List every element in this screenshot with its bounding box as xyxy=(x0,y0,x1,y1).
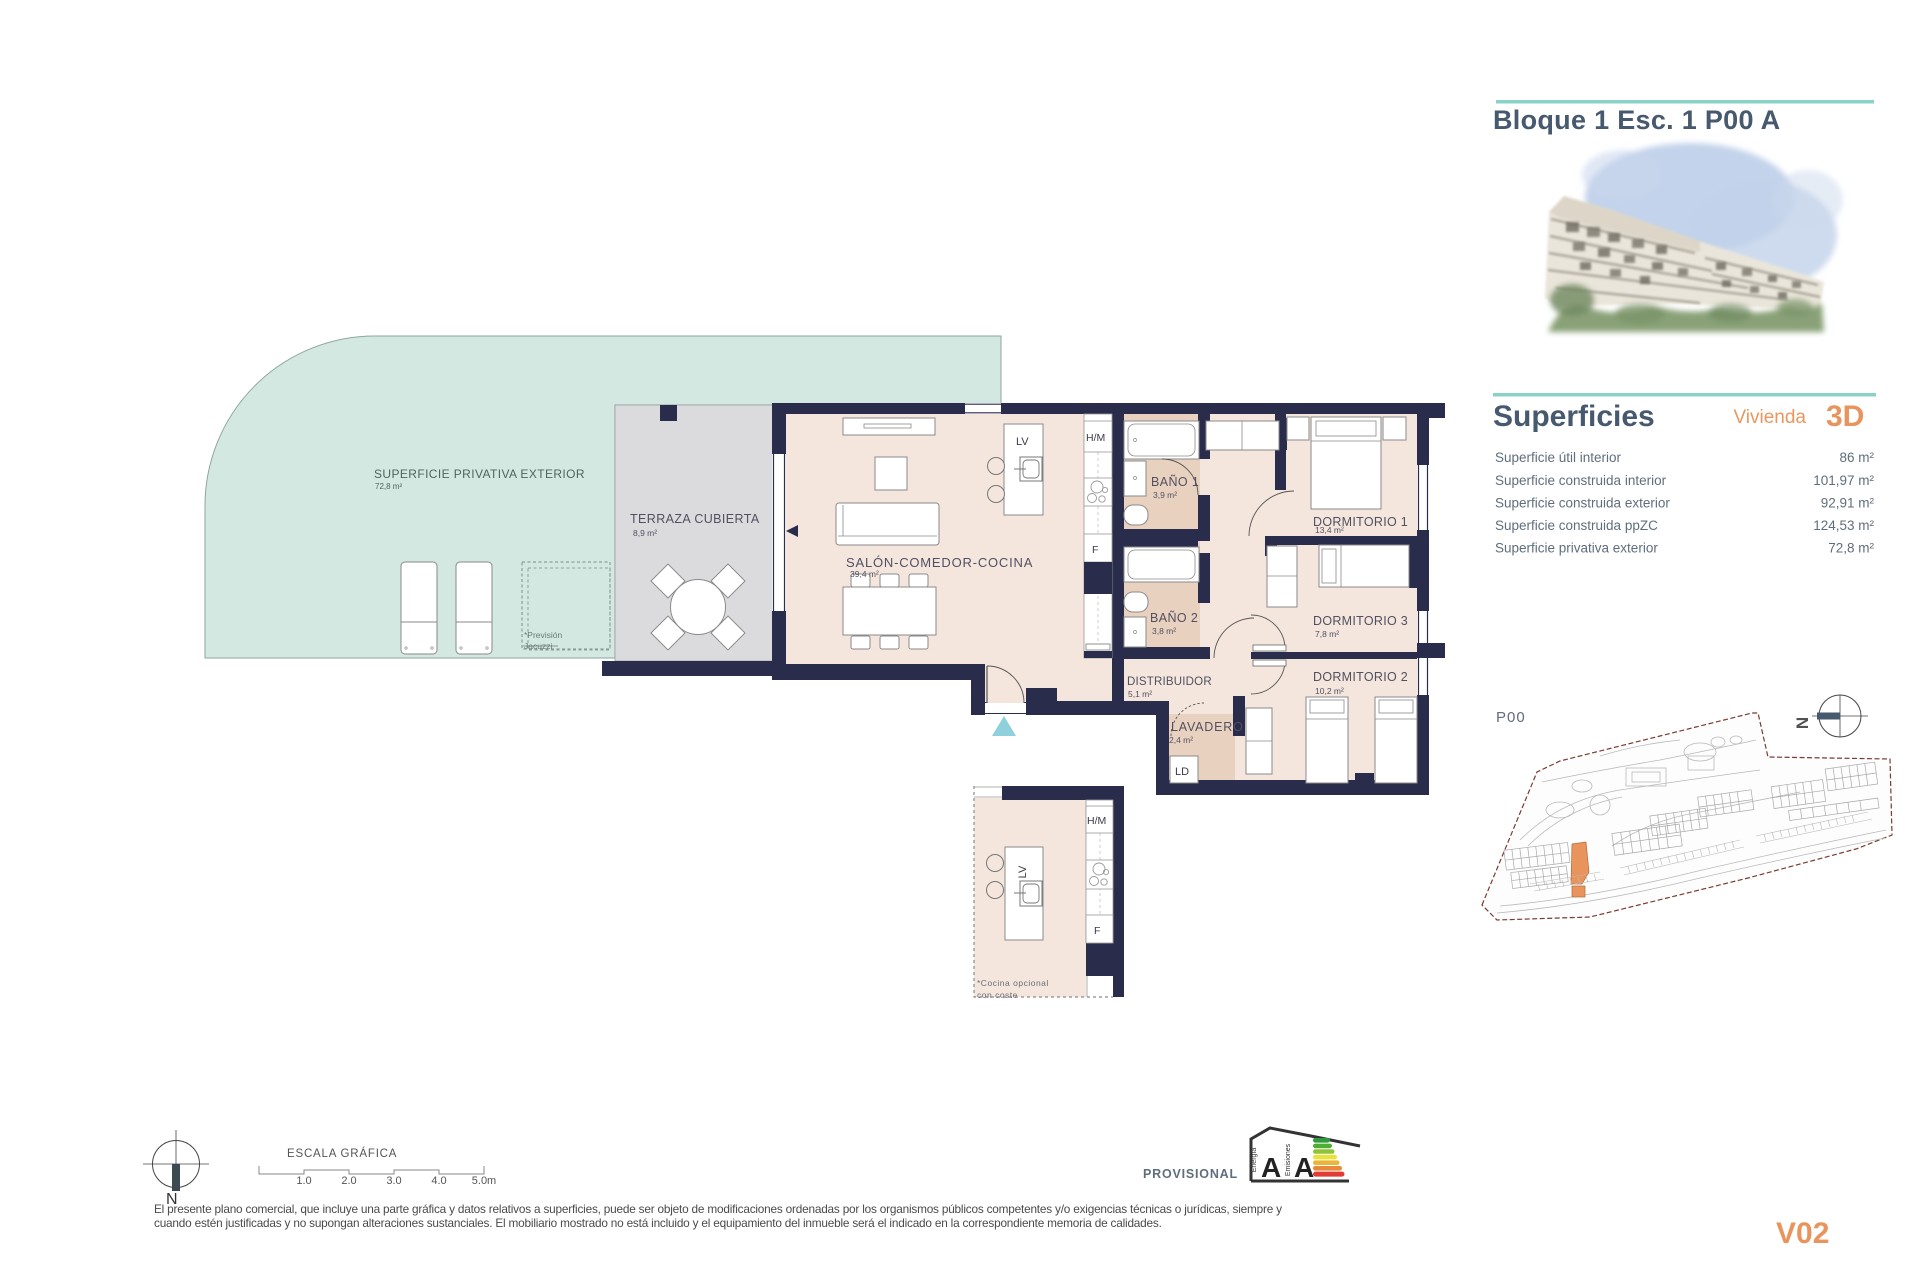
svg-text:3D: 3D xyxy=(1826,400,1864,433)
svg-text:3.0: 3.0 xyxy=(386,1175,401,1187)
svg-text:92,91 m²: 92,91 m² xyxy=(1821,496,1875,511)
svg-text:Bloque 1 Esc. 1 P00 A: Bloque 1 Esc. 1 P00 A xyxy=(1493,105,1780,135)
svg-text:2,4 m²: 2,4 m² xyxy=(1169,735,1193,745)
svg-text:Vivienda: Vivienda xyxy=(1733,407,1806,428)
svg-text:Superficie construida interior: Superficie construida interior xyxy=(1495,473,1667,488)
svg-text:El presente plano comercial, q: El presente plano comercial, que incluye… xyxy=(154,1202,1282,1216)
svg-text:7,8 m²: 7,8 m² xyxy=(1315,629,1339,639)
svg-text:3,9 m²: 3,9 m² xyxy=(1153,490,1177,500)
svg-text:TERRAZA CUBIERTA: TERRAZA CUBIERTA xyxy=(630,512,760,526)
svg-text:cuando estén justificadas y no: cuando estén justificadas y no supongan … xyxy=(154,1216,1162,1230)
svg-text:BAÑO 2: BAÑO 2 xyxy=(1150,611,1198,625)
svg-text:5,1 m²: 5,1 m² xyxy=(1128,689,1152,699)
svg-text:BAÑO 1: BAÑO 1 xyxy=(1151,475,1199,489)
svg-text:LD: LD xyxy=(1175,766,1189,778)
svg-text:86 m²: 86 m² xyxy=(1839,450,1874,465)
svg-text:2.0: 2.0 xyxy=(341,1175,356,1187)
svg-text:LV: LV xyxy=(1017,865,1029,878)
svg-text:Energía: Energía xyxy=(1251,1148,1258,1173)
svg-text:A: A xyxy=(1294,1152,1314,1183)
svg-text:LV: LV xyxy=(1016,436,1029,448)
svg-text:con coste: con coste xyxy=(977,990,1018,1000)
svg-text:Emisiones: Emisiones xyxy=(1285,1143,1292,1176)
svg-text:H/M: H/M xyxy=(1086,432,1105,444)
svg-text:A: A xyxy=(1261,1152,1281,1183)
svg-text:V02: V02 xyxy=(1776,1217,1829,1250)
svg-text:SUPERFICIE PRIVATIVA EXTERIOR: SUPERFICIE PRIVATIVA EXTERIOR xyxy=(374,467,585,481)
svg-text:*Cocina opcional: *Cocina opcional xyxy=(977,978,1049,988)
svg-text:72,8 m²: 72,8 m² xyxy=(1828,541,1874,556)
svg-text:72,8 m²: 72,8 m² xyxy=(375,482,402,491)
svg-text:DORMITORIO 2: DORMITORIO 2 xyxy=(1313,670,1408,684)
svg-text:4.0: 4.0 xyxy=(431,1175,446,1187)
svg-text:LAVADERO: LAVADERO xyxy=(1171,720,1244,734)
svg-text:Superficie útil interior: Superficie útil interior xyxy=(1495,450,1622,465)
svg-text:H/M: H/M xyxy=(1087,815,1106,827)
svg-text:Superficie construida exterior: Superficie construida exterior xyxy=(1495,496,1670,511)
svg-text:1.0: 1.0 xyxy=(296,1175,311,1187)
svg-text:DORMITORIO 3: DORMITORIO 3 xyxy=(1313,614,1408,628)
svg-text:Superficies: Superficies xyxy=(1493,400,1655,433)
svg-text:F: F xyxy=(1094,925,1100,937)
svg-text:P00: P00 xyxy=(1496,709,1526,726)
svg-text:124,53 m²: 124,53 m² xyxy=(1813,518,1874,533)
svg-text:ESCALA GRÁFICA: ESCALA GRÁFICA xyxy=(287,1147,397,1160)
svg-text:101,97 m²: 101,97 m² xyxy=(1813,473,1874,488)
svg-text:3,8 m²: 3,8 m² xyxy=(1152,626,1176,636)
svg-text:Superficie privativa exterior: Superficie privativa exterior xyxy=(1495,541,1658,556)
svg-text:8,9 m²: 8,9 m² xyxy=(633,528,657,538)
svg-text:SALÓN-COMEDOR-COCINA: SALÓN-COMEDOR-COCINA xyxy=(846,555,1033,570)
svg-text:DISTRIBUIDOR: DISTRIBUIDOR xyxy=(1127,676,1212,688)
svg-text:PROVISIONAL: PROVISIONAL xyxy=(1143,1167,1238,1181)
svg-text:13,4 m²: 13,4 m² xyxy=(1315,525,1344,535)
svg-text:Superficie construida ppZC: Superficie construida ppZC xyxy=(1495,518,1658,533)
svg-text:N: N xyxy=(1793,717,1812,729)
svg-text:*Previsión: *Previsión xyxy=(524,630,563,640)
svg-text:F: F xyxy=(1092,544,1098,556)
svg-text:10,2 m²: 10,2 m² xyxy=(1315,686,1344,696)
svg-text:39,4 m²: 39,4 m² xyxy=(850,569,879,579)
svg-text:5.0m: 5.0m xyxy=(472,1175,496,1187)
